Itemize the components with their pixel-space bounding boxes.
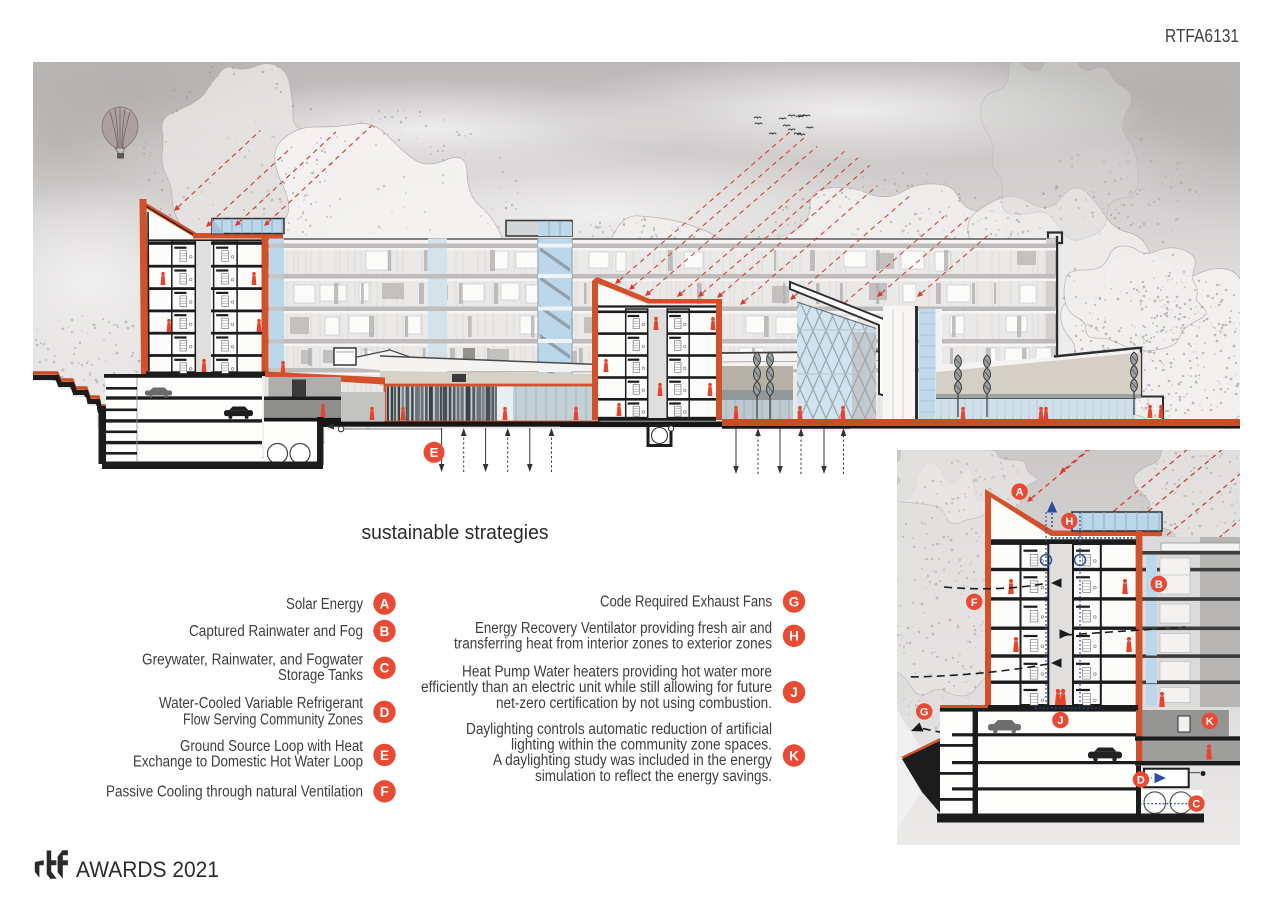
svg-text:J: J — [790, 685, 798, 700]
svg-text:Exchange to Domestic Hot Water: Exchange to Domestic Hot Water Loop — [133, 754, 363, 771]
svg-text:transferring heat from interio: transferring heat from interior zones to… — [454, 636, 772, 653]
svg-text:E: E — [430, 445, 439, 460]
svg-text:sustainable strategies: sustainable strategies — [362, 521, 549, 544]
svg-text:Captured Rainwater and Fog: Captured Rainwater and Fog — [189, 623, 363, 640]
svg-text:F: F — [971, 597, 978, 609]
svg-text:RTFA6131: RTFA6131 — [1165, 25, 1239, 46]
svg-text:Greywater, Rainwater, and Fogw: Greywater, Rainwater, and Fogwater — [142, 652, 363, 669]
svg-text:efficiently than an electric u: efficiently than an electric unit while … — [421, 679, 772, 696]
svg-text:D: D — [1137, 774, 1145, 786]
svg-text:Water-Cooled Variable Refriger: Water-Cooled Variable Refrigerant — [159, 695, 364, 712]
svg-text:net-zero certification by not: net-zero certification by not using comb… — [496, 695, 772, 712]
svg-text:Daylighting controls automatic: Daylighting controls automatic reduction… — [466, 721, 772, 738]
svg-text:H: H — [1065, 516, 1073, 528]
svg-text:A daylighting study was includ: A daylighting study was included in the … — [493, 752, 772, 769]
svg-text:K: K — [789, 748, 799, 763]
svg-text:J: J — [1057, 715, 1063, 727]
svg-text:Flow Serving Community Zones: Flow Serving Community Zones — [183, 711, 363, 728]
svg-text:Solar Energy: Solar Energy — [286, 596, 363, 613]
svg-text:B: B — [1155, 579, 1163, 591]
svg-text:D: D — [380, 705, 390, 720]
svg-text:B: B — [380, 624, 390, 639]
svg-text:Code Required Exhaust Fans: Code Required Exhaust Fans — [600, 594, 772, 611]
svg-text:A: A — [1016, 487, 1024, 499]
svg-text:G: G — [920, 706, 929, 718]
svg-text:H: H — [789, 629, 799, 644]
svg-text:F: F — [380, 784, 388, 799]
svg-text:lighting within the community: lighting within the community zone space… — [511, 737, 772, 754]
svg-text:Ground Source Loop with Heat: Ground Source Loop with Heat — [180, 738, 364, 755]
svg-text:E: E — [380, 748, 389, 763]
svg-text:Energy Recovery Ventilator pro: Energy Recovery Ventilator providing fre… — [475, 620, 772, 637]
svg-text:Passive Cooling through natura: Passive Cooling through natural Ventilat… — [106, 784, 363, 801]
svg-text:Storage Tanks: Storage Tanks — [278, 667, 363, 684]
svg-text:K: K — [1206, 716, 1214, 728]
svg-text:C: C — [380, 661, 390, 676]
svg-text:Heat Pump Water heaters provid: Heat Pump Water heaters providing hot wa… — [462, 664, 772, 681]
svg-text:simulation to reflect the ener: simulation to reflect the energy savings… — [535, 768, 772, 785]
svg-text:C: C — [1192, 799, 1200, 811]
svg-text:A: A — [380, 596, 390, 611]
svg-text:AWARDS 2021: AWARDS 2021 — [76, 857, 219, 882]
svg-text:G: G — [789, 594, 800, 609]
